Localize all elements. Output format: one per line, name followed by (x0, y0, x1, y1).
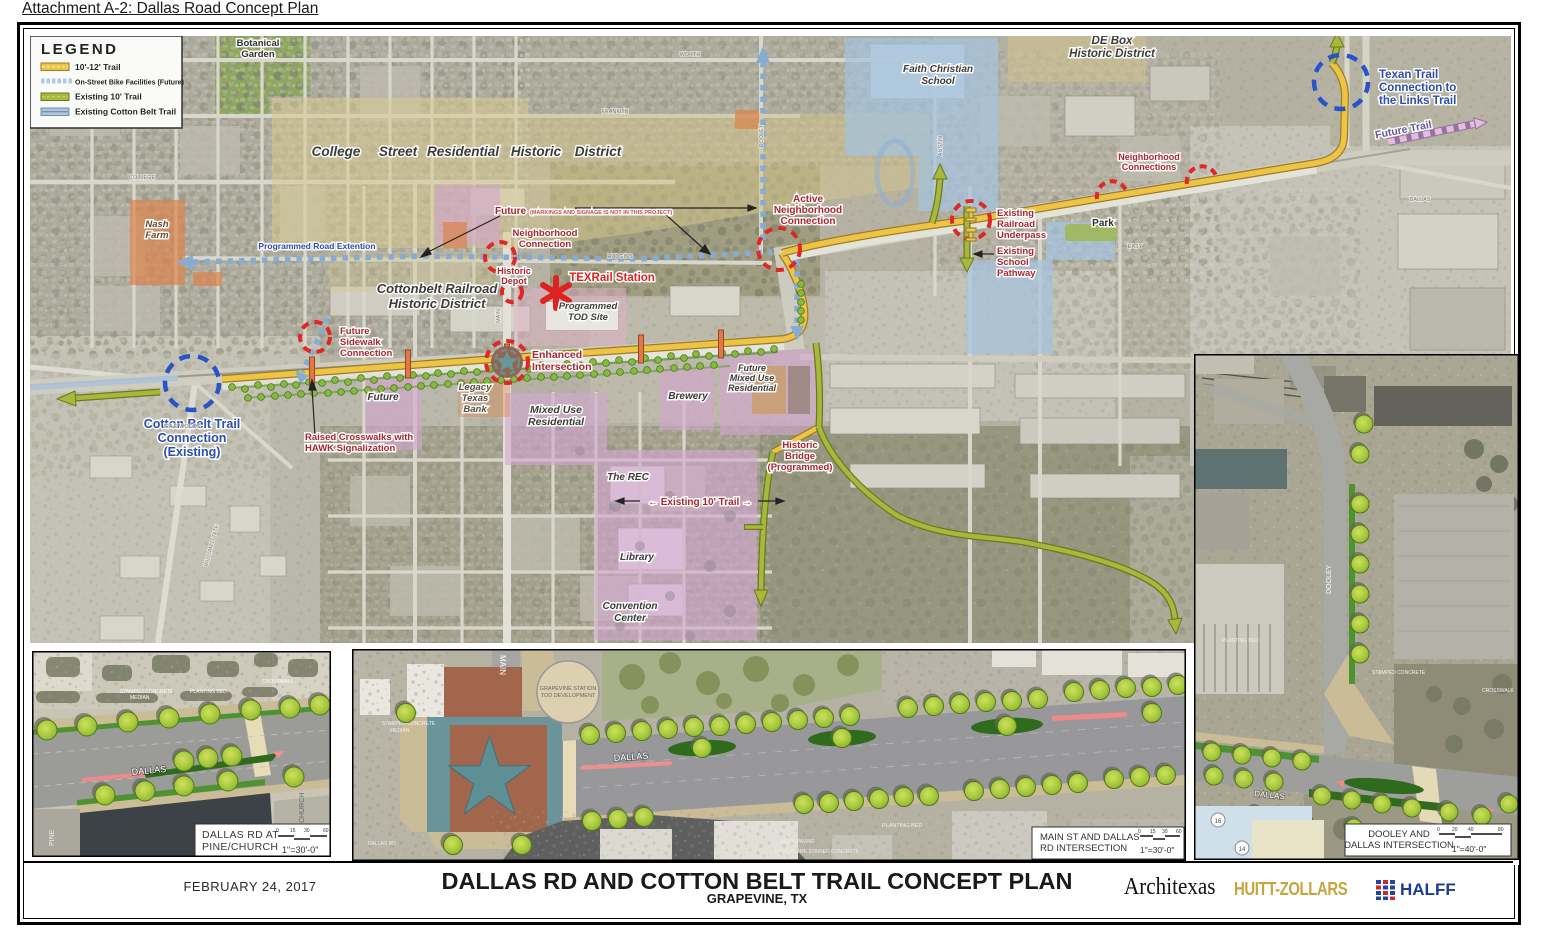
svg-text:LITHOCHROME STAINED CONCRETE: LITHOCHROME STAINED CONCRETE (770, 849, 860, 855)
svg-text:TOD DEVELOPMENT: TOD DEVELOPMENT (541, 693, 596, 699)
svg-text:CROSSWALK: CROSSWALK (262, 679, 294, 685)
svg-text:PINE/CHURCH: PINE/CHURCH (202, 841, 278, 853)
svg-text:80: 80 (1498, 827, 1504, 833)
svg-text:DOOLEY: DOOLEY (1326, 564, 1333, 594)
svg-text:16: 16 (1215, 819, 1222, 825)
svg-text:MEDIAN: MEDIAN (390, 728, 410, 734)
svg-text:DALLAS INTERSECTION: DALLAS INTERSECTION (1344, 840, 1454, 851)
svg-text:PLANTING BED: PLANTING BED (190, 689, 227, 695)
svg-text:STAMPED CONCRETE: STAMPED CONCRETE (1372, 670, 1426, 676)
svg-text:0: 0 (1437, 827, 1440, 833)
svg-text:PLANTING BED: PLANTING BED (1222, 638, 1259, 644)
svg-text:GRAPEVINE STATION: GRAPEVINE STATION (540, 686, 597, 692)
svg-text:30: 30 (304, 828, 310, 834)
svg-text:PLANTING BED: PLANTING BED (882, 823, 922, 829)
svg-text:CHURCH: CHURCH (299, 793, 306, 823)
svg-text:30: 30 (1162, 829, 1168, 835)
svg-text:40: 40 (1468, 827, 1474, 833)
svg-text:14: 14 (1239, 847, 1246, 853)
svg-text:PINE: PINE (49, 829, 56, 846)
svg-text:15: 15 (290, 828, 296, 834)
svg-text:MEDIAN: MEDIAN (130, 695, 150, 701)
svg-text:MAIN ST AND DALLAS: MAIN ST AND DALLAS (1040, 832, 1140, 843)
svg-text:1"=30'-0": 1"=30'-0" (1140, 845, 1174, 855)
svg-text:RD INTERSECTION: RD INTERSECTION (1040, 843, 1127, 854)
svg-text:20: 20 (1452, 827, 1458, 833)
svg-text:0: 0 (1138, 829, 1141, 835)
svg-text:15: 15 (1150, 829, 1156, 835)
svg-text:MAIN: MAIN (498, 655, 507, 675)
svg-text:1"=30'-0": 1"=30'-0" (282, 845, 318, 855)
svg-text:DALLAS RD: DALLAS RD (368, 841, 396, 847)
svg-text:DOOLEY AND: DOOLEY AND (1368, 829, 1430, 840)
svg-text:DALLAS RD AT: DALLAS RD AT (202, 829, 279, 841)
svg-text:1"=40'-0": 1"=40'-0" (1452, 844, 1486, 854)
svg-text:BRICK PAVING: BRICK PAVING (780, 839, 815, 845)
svg-text:CROSSWALK: CROSSWALK (1482, 688, 1514, 694)
svg-text:60: 60 (323, 828, 329, 834)
svg-text:0: 0 (276, 828, 279, 834)
svg-text:60: 60 (1176, 829, 1182, 835)
